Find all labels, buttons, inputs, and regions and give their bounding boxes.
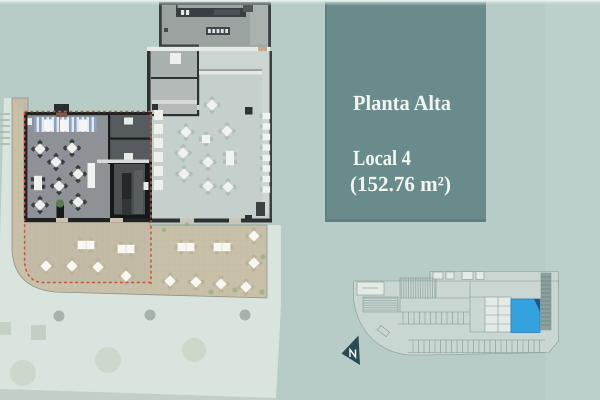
svg-text:(152.76 m²): (152.76 m²) bbox=[350, 172, 451, 196]
svg-text:Planta Alta: Planta Alta bbox=[353, 91, 451, 115]
svg-text:Local 4: Local 4 bbox=[353, 146, 411, 170]
